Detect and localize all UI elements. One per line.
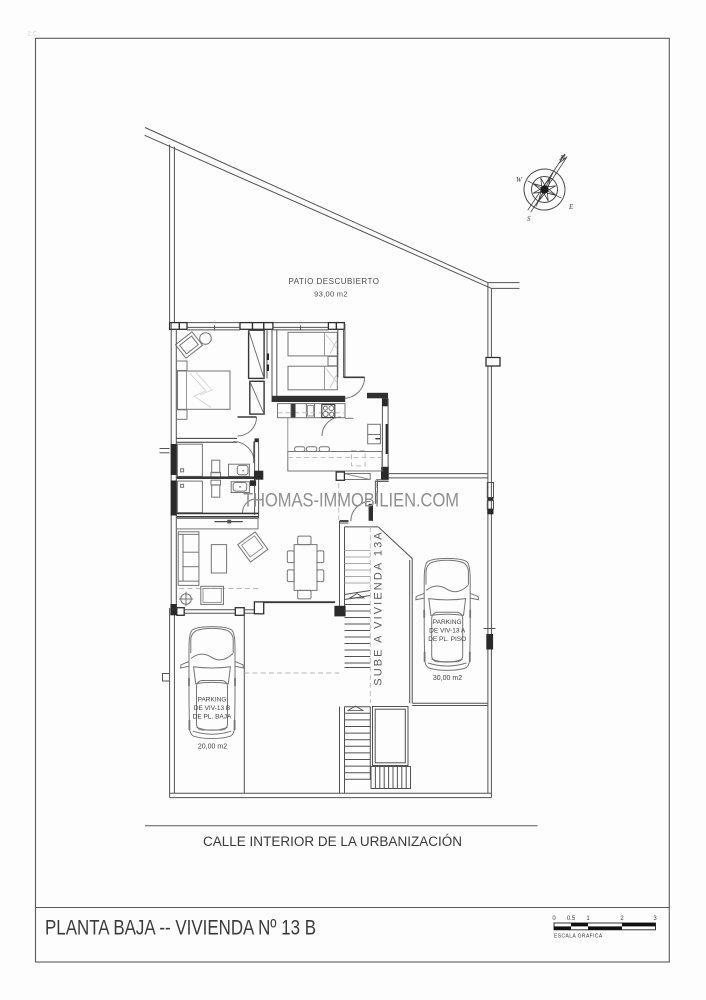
- svg-text:THOMAS-IMMOBILIEN.COM: THOMAS-IMMOBILIEN.COM: [243, 491, 459, 512]
- svg-text:30,00 m2: 30,00 m2: [433, 675, 462, 682]
- svg-text:93,00 m2: 93,00 m2: [314, 290, 348, 299]
- svg-text:DE PL. BAJA: DE PL. BAJA: [193, 713, 232, 720]
- svg-text:ESCALA GRAFICA: ESCALA GRAFICA: [554, 934, 603, 940]
- svg-text:PLANTA BAJA -- VIVIENDA Nº 1: PLANTA BAJA -- VIVIENDA Nº 13 B: [45, 916, 316, 940]
- svg-text:PATIO DESCUBIERTO: PATIO DESCUBIERTO: [288, 277, 379, 286]
- svg-text:CALLE INTERIOR DE LA URBAN: CALLE INTERIOR DE LA URBANIZACIÓN: [203, 834, 462, 849]
- svg-text:N: N: [559, 154, 566, 163]
- svg-text:20,00 m2: 20,00 m2: [198, 744, 227, 751]
- svg-text:S: S: [527, 215, 531, 223]
- svg-text:0.5: 0.5: [567, 916, 576, 922]
- svg-text:PARKING: PARKING: [198, 697, 227, 704]
- svg-text:DE PL. PISO: DE PL. PISO: [428, 636, 466, 643]
- svg-text:DE VIV-13 A: DE VIV-13 A: [429, 628, 466, 635]
- svg-text:E: E: [568, 203, 574, 211]
- svg-text:SUBE A VIVIENDA 13A: SUBE A VIVIENDA 13A: [373, 530, 385, 685]
- svg-text:DE VIV-13 B: DE VIV-13 B: [194, 705, 231, 712]
- svg-text:PARKING: PARKING: [433, 619, 462, 626]
- svg-text:1:C: 1:C: [27, 31, 38, 38]
